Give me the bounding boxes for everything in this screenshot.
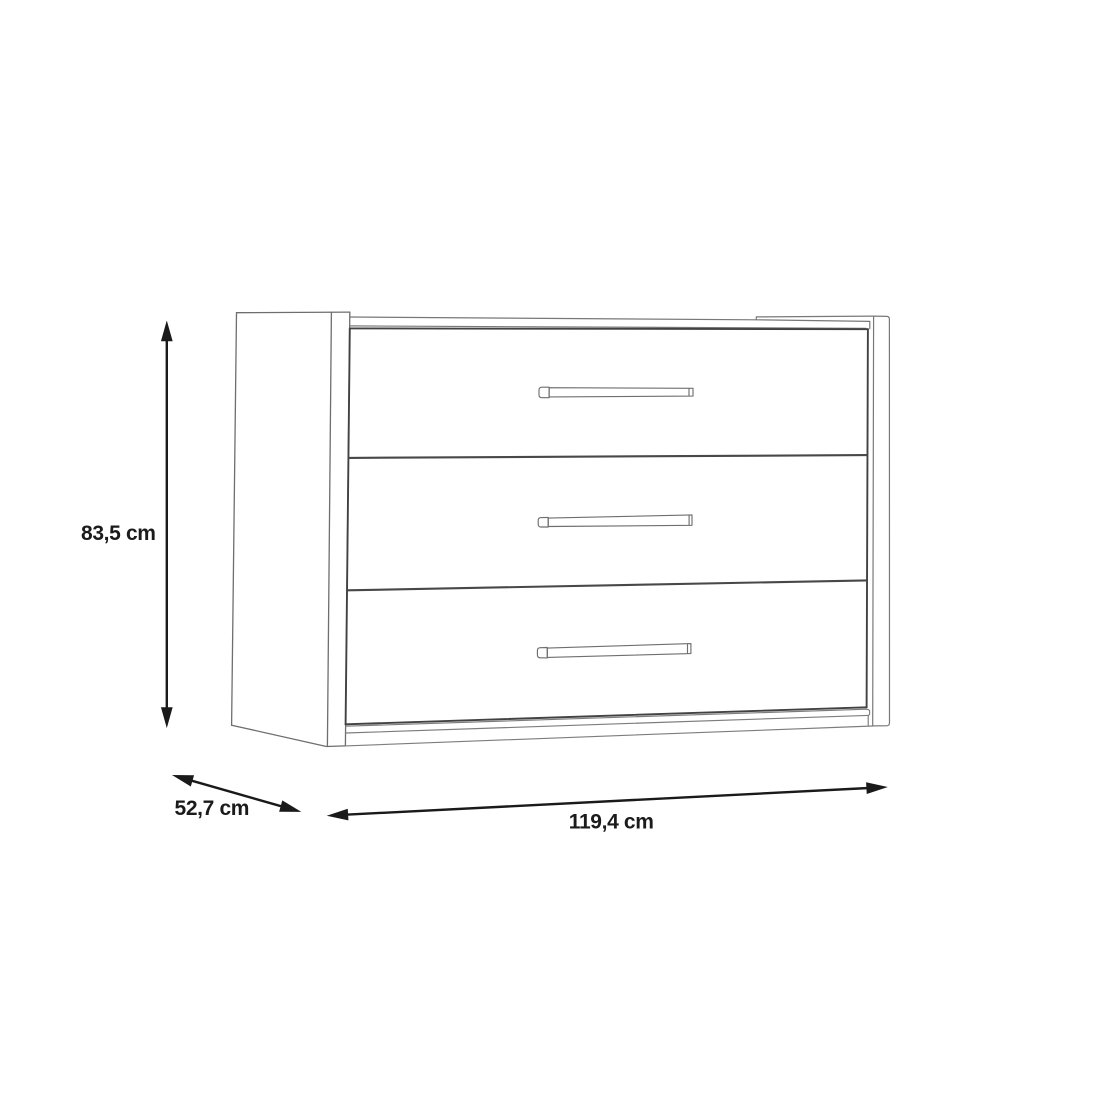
svg-text:52,7 cm: 52,7 cm (175, 797, 250, 820)
svg-text:83,5 cm: 83,5 cm (81, 522, 156, 545)
svg-text:119,4 cm: 119,4 cm (569, 810, 654, 833)
